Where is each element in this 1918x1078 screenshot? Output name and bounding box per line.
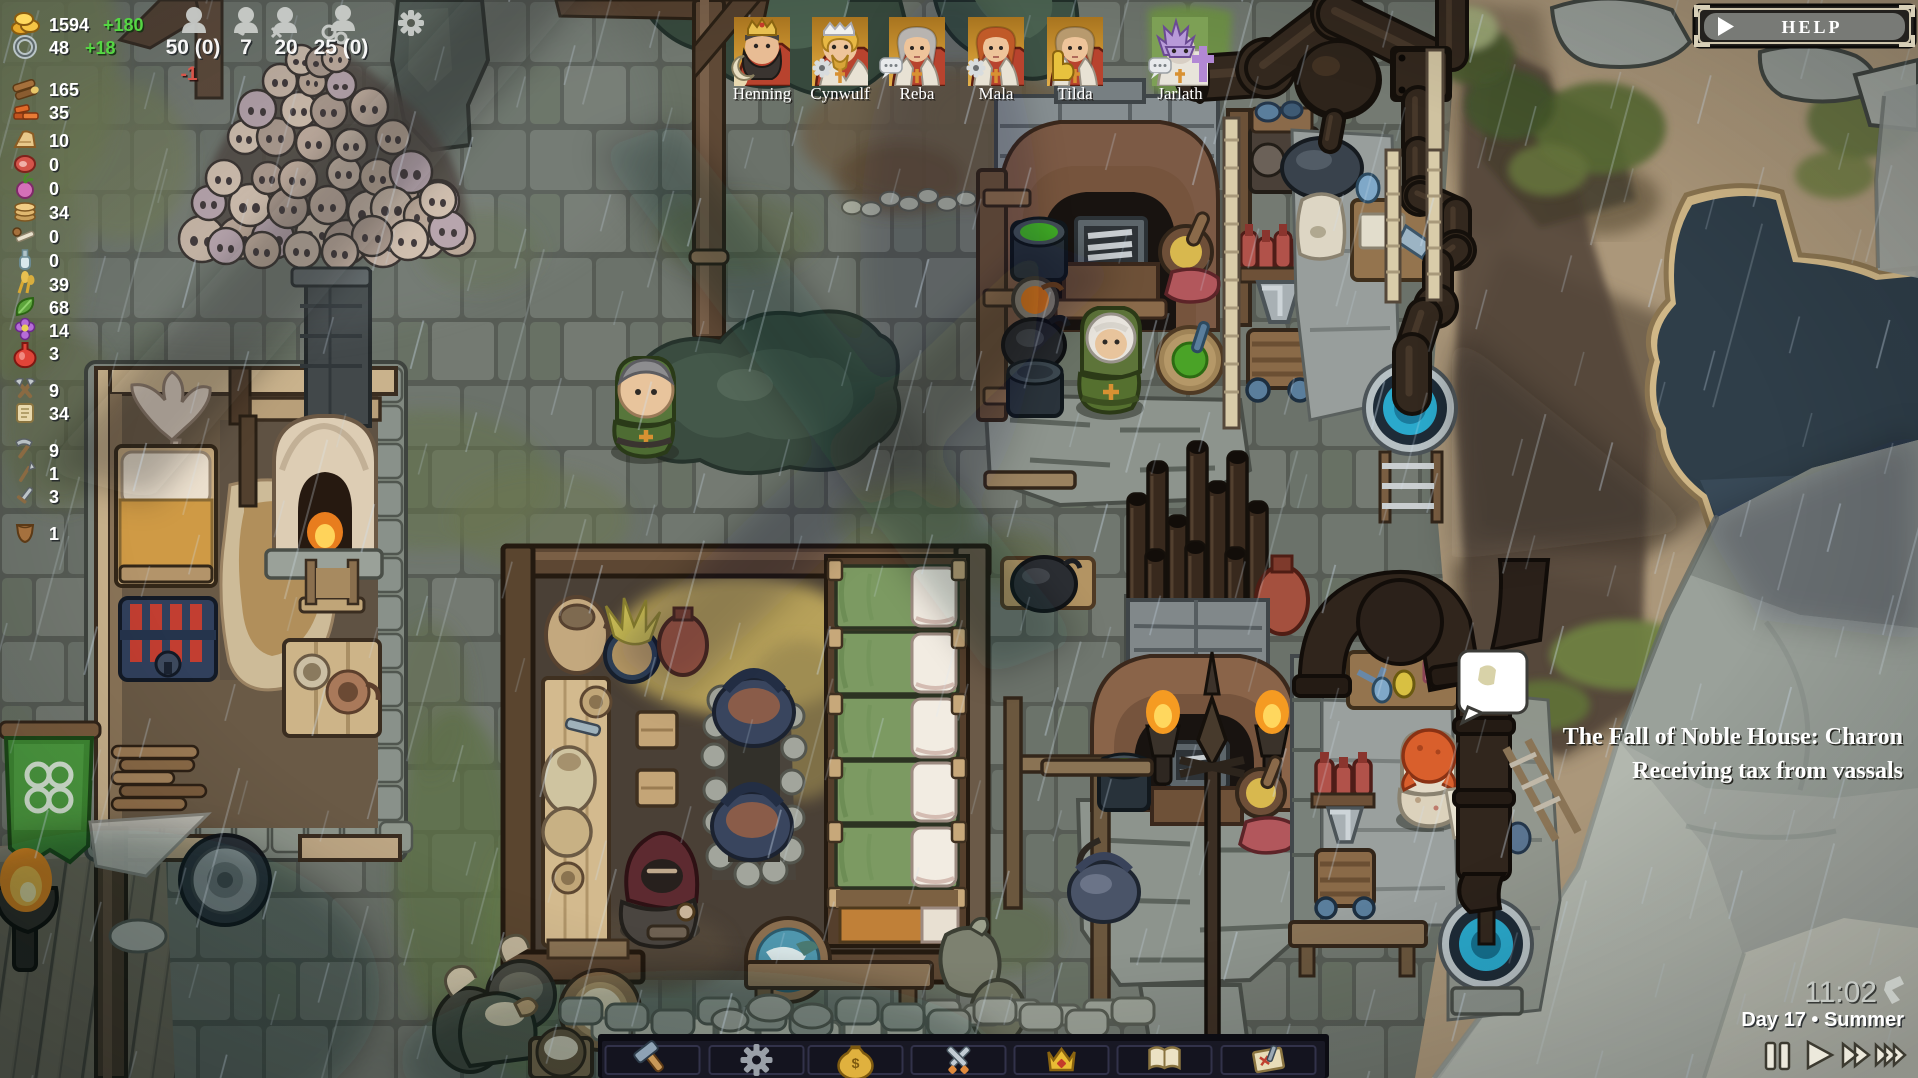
svg-text:9: 9 xyxy=(49,381,59,401)
svg-text:0: 0 xyxy=(49,179,59,199)
svg-text:35: 35 xyxy=(49,103,69,123)
svg-text:+18: +18 xyxy=(85,38,116,58)
svg-text:+180: +180 xyxy=(103,15,144,35)
svg-text:165: 165 xyxy=(49,80,79,100)
svg-text:The Fall of Noble House: Charo: The Fall of Noble House: Charon xyxy=(1563,724,1903,750)
svg-text:50 (0): 50 (0) xyxy=(166,36,221,59)
svg-text:0: 0 xyxy=(49,227,59,247)
svg-text:Reba: Reba xyxy=(900,84,935,103)
svg-text:1: 1 xyxy=(49,464,59,484)
svg-text:7: 7 xyxy=(240,36,252,59)
svg-text:Mala: Mala xyxy=(979,84,1014,103)
svg-text:Tilda: Tilda xyxy=(1057,84,1093,103)
svg-text:3: 3 xyxy=(49,487,59,507)
svg-text:25 (0): 25 (0) xyxy=(314,36,369,59)
svg-text:0: 0 xyxy=(49,251,59,271)
svg-text:34: 34 xyxy=(49,404,69,424)
svg-text:39: 39 xyxy=(49,275,69,295)
svg-text:Day 17 • Summer: Day 17 • Summer xyxy=(1741,1009,1904,1031)
svg-text:Receiving tax from vassals: Receiving tax from vassals xyxy=(1632,758,1903,784)
svg-text:9: 9 xyxy=(49,441,59,461)
svg-text:Henning: Henning xyxy=(733,84,792,103)
svg-text:34: 34 xyxy=(49,203,69,223)
svg-text:11:02: 11:02 xyxy=(1804,976,1877,1009)
svg-text:-1: -1 xyxy=(181,64,198,85)
svg-text:14: 14 xyxy=(49,321,69,341)
svg-text:Jarlath: Jarlath xyxy=(1157,84,1203,103)
svg-text:10: 10 xyxy=(49,131,69,151)
svg-text:1594: 1594 xyxy=(49,15,89,35)
svg-text:20: 20 xyxy=(274,36,297,59)
svg-text:0: 0 xyxy=(49,155,59,175)
svg-text:HELP: HELP xyxy=(1781,17,1842,37)
svg-text:3: 3 xyxy=(49,344,59,364)
svg-text:68: 68 xyxy=(49,298,69,318)
svg-text:48: 48 xyxy=(49,38,69,58)
svg-text:$: $ xyxy=(852,1055,860,1071)
svg-text:1: 1 xyxy=(49,524,59,544)
svg-text:Cynwulf: Cynwulf xyxy=(810,84,870,103)
